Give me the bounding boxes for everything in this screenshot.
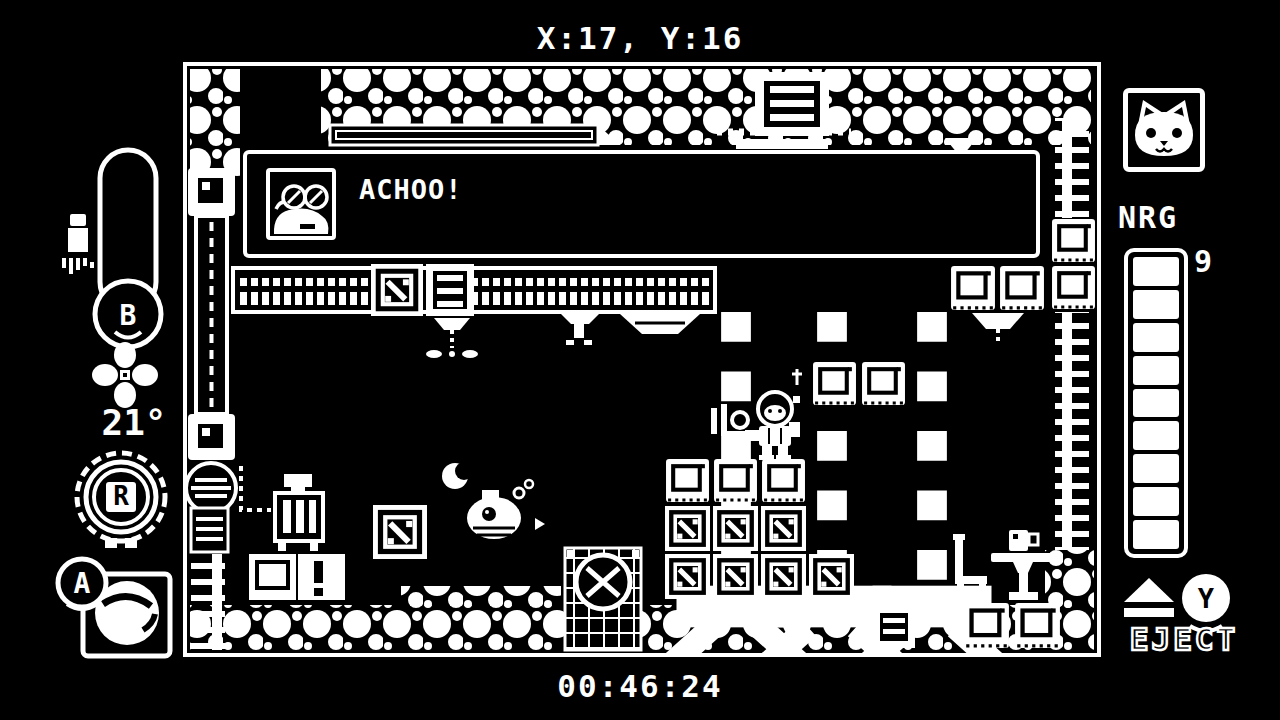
energy-segment: [1133, 290, 1179, 319]
fan-icon: [90, 340, 160, 410]
mouse-with-glasses-icon: [270, 172, 332, 236]
mug: [1009, 530, 1028, 551]
crate: [813, 362, 856, 405]
eject-label-wrap: EJECT: [1112, 620, 1268, 660]
platform-crate: [964, 603, 1009, 648]
r-button-dial: R: [72, 450, 172, 550]
energy-bar: [1124, 248, 1188, 558]
wall-panel: [191, 508, 228, 552]
funnel-vent: [620, 314, 700, 334]
energy-segment: [1133, 257, 1179, 286]
chain: [241, 466, 271, 510]
hatch-circle-x: [565, 548, 641, 650]
energy-segment: [1133, 323, 1179, 352]
sparkle-particle: [792, 369, 802, 385]
lamp-machine: [275, 474, 323, 551]
energy-segment: [1133, 520, 1179, 549]
top-ladder-block: [755, 72, 829, 136]
energy-segment: [1133, 389, 1179, 418]
seed-sprout: [426, 318, 478, 358]
crate: [862, 362, 905, 405]
dialog-text: ACHOO!: [359, 174, 463, 205]
game-screen: X:17, Y:16 B 21° R A: [0, 0, 1280, 720]
energy-segment: [1133, 454, 1179, 483]
wall-crates-right: [951, 266, 1044, 342]
wall-pipe: [186, 168, 236, 513]
cat-mech-robot: [745, 369, 802, 460]
energy-segment: [1133, 487, 1179, 516]
crate-stack: [666, 459, 852, 597]
r-button-label: R: [113, 481, 129, 511]
x-crate: [375, 507, 424, 556]
temperature-readout: 21°: [84, 402, 184, 443]
player-portrait-box: [1123, 88, 1205, 172]
a-button-label: A: [74, 567, 91, 600]
energy-label: NRG: [1118, 200, 1218, 235]
cat-face-icon: [1129, 94, 1199, 164]
energy-segment: [1133, 421, 1179, 450]
wall-ladder-right: [1052, 118, 1095, 550]
b-button-label: B: [120, 299, 137, 332]
platform-crate: [1015, 603, 1060, 648]
moon-pickup: [442, 462, 473, 489]
speedrun-timer: 00:46:24: [0, 668, 1280, 704]
speech-dialog[interactable]: ACHOO!: [243, 150, 1040, 258]
submarine: [467, 480, 545, 539]
eject-arrow-icon: [1124, 578, 1174, 602]
top-pipe: [330, 125, 620, 145]
thermometer-gauge: B: [88, 142, 173, 357]
dialog-portrait-box: [266, 168, 336, 240]
eject-label: EJECT: [1130, 621, 1238, 657]
map-coordinates: X:17, Y:16: [0, 20, 1280, 56]
a-button-spinner: A: [55, 546, 177, 660]
energy-segment: [1133, 356, 1179, 385]
girder-platform: [233, 264, 715, 316]
t-vent: [561, 314, 599, 345]
platform-tiles: [249, 554, 345, 600]
ground-ladder-tile: [873, 606, 915, 648]
energy-value: 9: [1194, 244, 1212, 279]
ladder: [191, 554, 225, 650]
y-button-label: Y: [1198, 583, 1215, 614]
